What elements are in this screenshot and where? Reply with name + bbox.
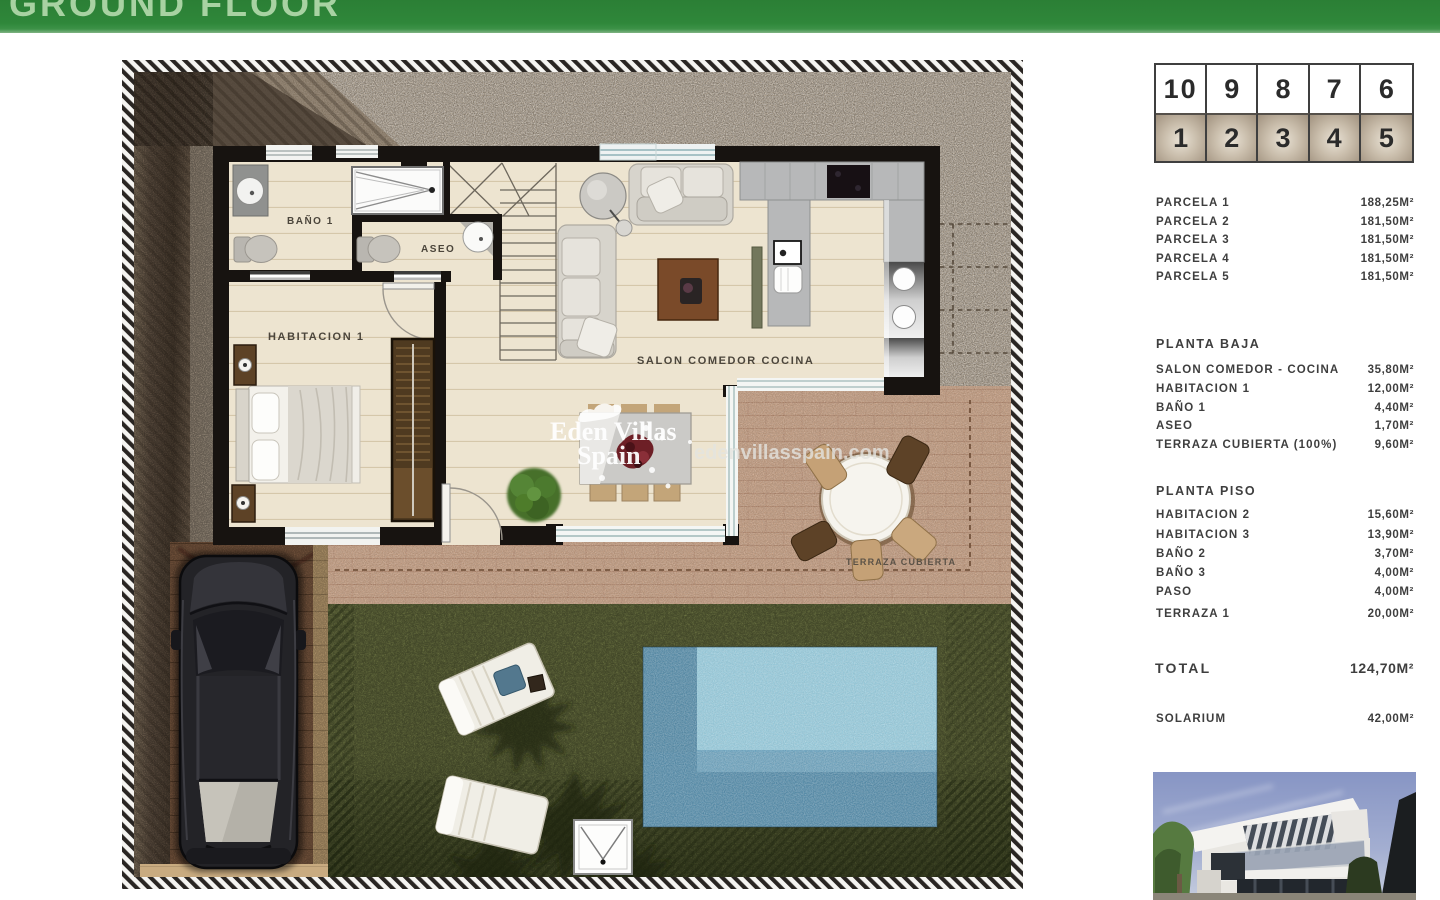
svg-text:Spain: Spain bbox=[577, 441, 641, 470]
svg-text:edenvillasspain.com: edenvillasspain.com bbox=[694, 442, 890, 464]
svg-text:ASEO: ASEO bbox=[421, 244, 455, 255]
svg-text:TERRAZA CUBIERTA: TERRAZA CUBIERTA bbox=[846, 557, 956, 567]
svg-text:HABITACION 1: HABITACION 1 bbox=[268, 331, 365, 343]
svg-text:SALON COMEDOR COCINA: SALON COMEDOR COCINA bbox=[637, 355, 814, 367]
svg-text:BAÑO 1: BAÑO 1 bbox=[287, 214, 334, 227]
